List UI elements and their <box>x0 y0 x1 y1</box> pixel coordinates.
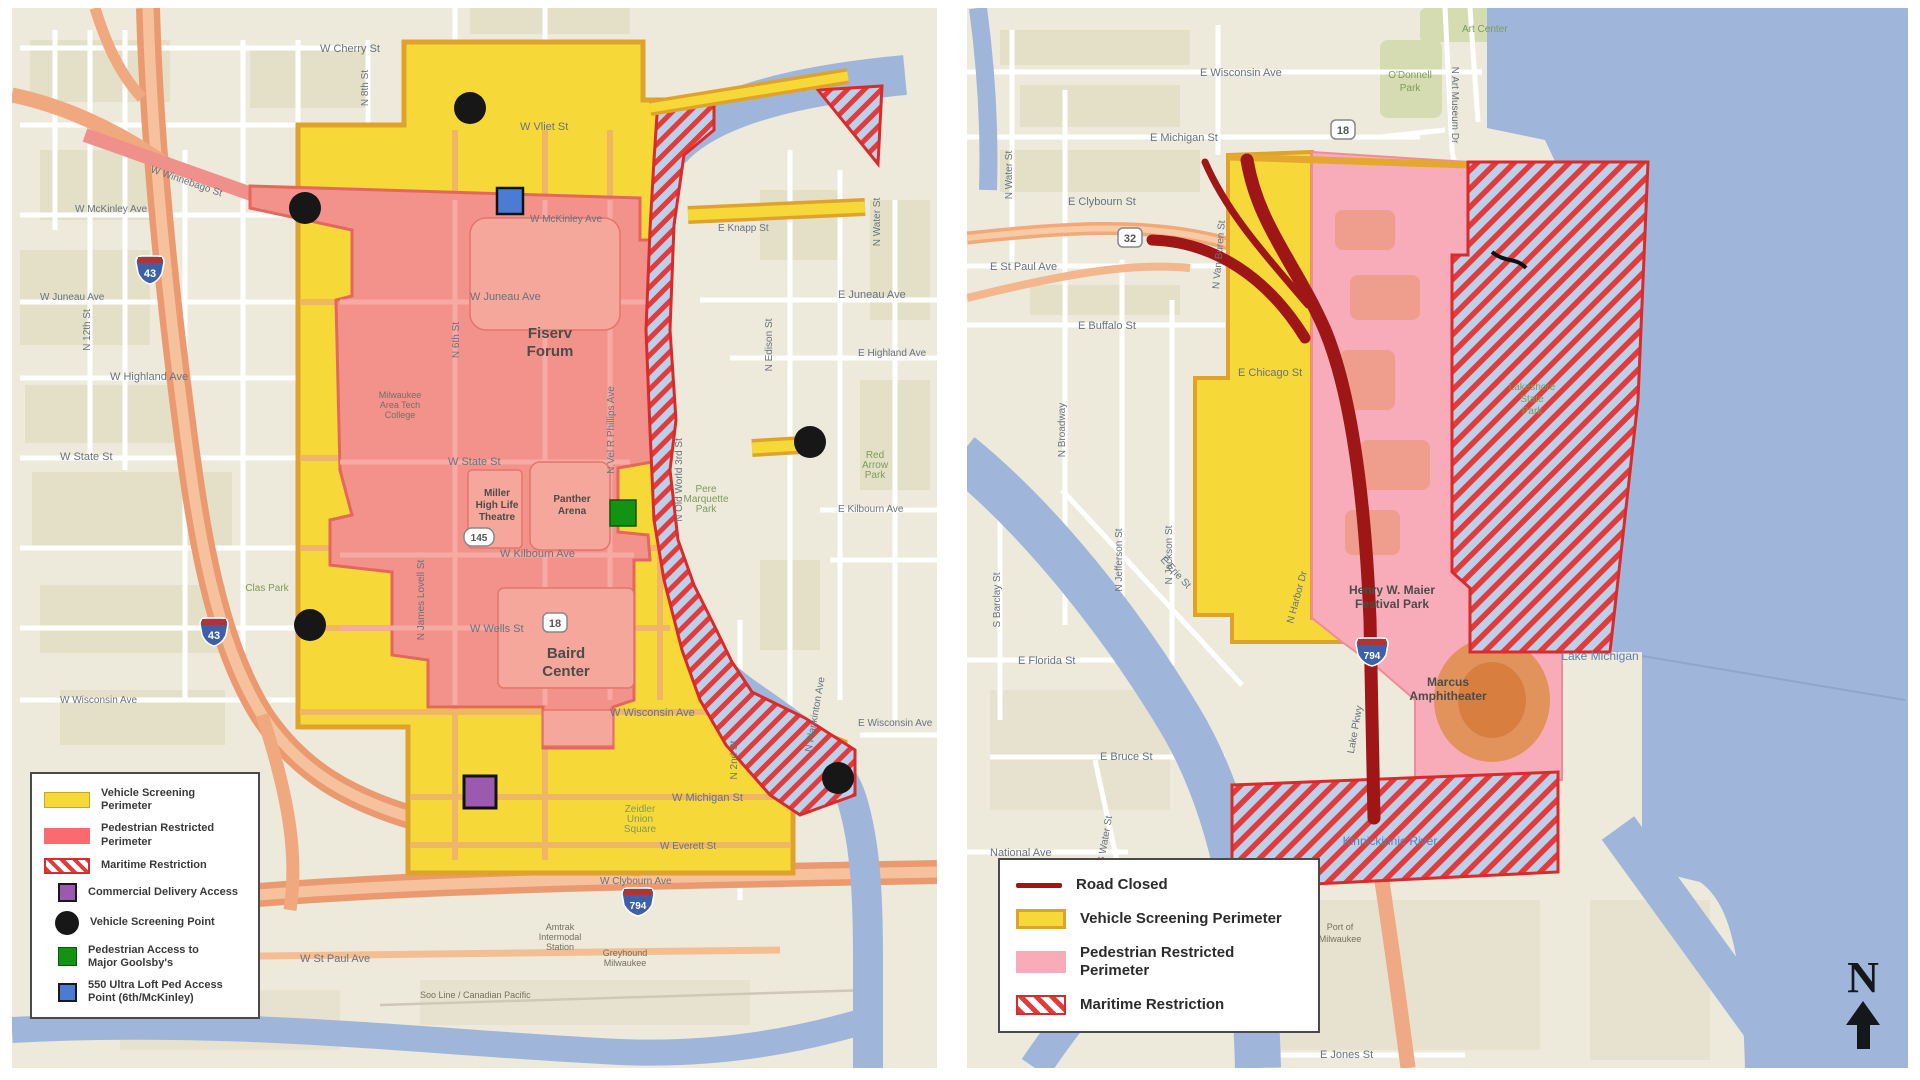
svg-text:Park: Park <box>865 470 887 481</box>
shield-label: 43 <box>144 268 156 280</box>
poi-label-greyhound: Greyhound <box>603 948 648 958</box>
street-label: E Wisconsin Ave <box>858 718 933 729</box>
legend-item-label: Vehicle Screening Point <box>90 916 215 929</box>
yellow-swatch-icon <box>44 792 90 808</box>
svg-text:Station: Station <box>546 942 574 952</box>
street-label: W State St <box>448 456 501 468</box>
vehicle-screening-point-marker[interactable] <box>294 609 326 641</box>
street-label: E Bruce St <box>1100 751 1153 763</box>
street-label: N Water St <box>1004 151 1015 200</box>
street-label: N 12th St <box>82 309 93 351</box>
street-label: N Old World 3rd St <box>674 438 685 522</box>
legend-item-label: Pedestrian Restricted Perimeter <box>1080 944 1302 980</box>
svg-text:Amphitheater: Amphitheater <box>1409 689 1487 703</box>
street-label: W Wisconsin Ave <box>60 695 137 706</box>
park-label-lakeshore: Lakeshore <box>1509 382 1556 393</box>
street-label: E Knapp St <box>718 223 769 234</box>
legend-item-label: Vehicle Screening Perimeter <box>101 787 248 813</box>
svg-text:Intermodal: Intermodal <box>539 932 582 942</box>
venue-label-baird: Baird <box>547 645 585 662</box>
legend-item-maritime-restriction: Maritime Restriction <box>1016 995 1302 1015</box>
venue-label-panther: Panther <box>553 494 590 505</box>
green-square-icon <box>58 947 77 966</box>
legend-item-vehicle-screening-perimeter: Vehicle Screening Perimeter <box>44 787 248 813</box>
street-label: N 2nd St <box>729 740 740 779</box>
vehicle-screening-point-marker[interactable] <box>289 192 321 224</box>
svg-text:Theatre: Theatre <box>479 512 516 523</box>
street-label: W Kilbourn Ave <box>500 548 575 560</box>
svg-text:Square: Square <box>624 824 657 835</box>
park-label-artcenter: Art Center <box>1462 24 1508 35</box>
north-compass: N <box>1830 958 1896 1049</box>
street-label: W Cherry St <box>320 43 380 55</box>
shield-label: 794 <box>630 901 647 912</box>
legend-item-550-ultra-loft: 550 Ultra Loft Ped Access Point (6th/McK… <box>44 979 248 1005</box>
street-label: N Vel R Phillips Ave <box>606 386 617 474</box>
security-map-page: { "left_map": { "legend": { "items": [ {… <box>0 0 1920 1080</box>
poi-label-amtrak: Amtrak <box>546 922 575 932</box>
street-label: N Water St <box>872 198 883 247</box>
pink-swatch-icon <box>1016 951 1066 973</box>
street-label: N 6th St <box>451 322 462 358</box>
black-circle-icon <box>55 911 79 935</box>
legend-item-commercial-delivery-access: Commercial Delivery Access <box>44 883 248 902</box>
legend-item-pedestrian-access: Pedestrian Access to Major Goolsby's <box>44 944 248 970</box>
water-label-lake-michigan: Lake Michigan <box>1561 649 1638 663</box>
street-label: E Chicago St <box>1238 367 1302 379</box>
street-label: W St Paul Ave <box>300 953 370 965</box>
street-label: W McKinley Ave <box>75 204 147 215</box>
svg-text:Milwaukee: Milwaukee <box>604 958 647 968</box>
legend-item-label: Maritime Restriction <box>101 859 207 872</box>
vehicle-screening-point-marker[interactable] <box>794 426 826 458</box>
highway-shield-145: 145 <box>464 528 494 546</box>
svg-text:Park: Park <box>1400 83 1422 94</box>
lakefront-map-legend: Road Closed Vehicle Screening Perimeter … <box>998 858 1320 1033</box>
legend-item-label: Commercial Delivery Access <box>88 886 238 899</box>
legend-item-pedestrian-restricted-perimeter: Pedestrian Restricted Perimeter <box>1016 944 1302 980</box>
street-label: W Wells St <box>470 623 524 635</box>
street-label: N Broadway <box>1057 403 1068 457</box>
north-arrow-icon <box>1846 1001 1880 1025</box>
street-label: N Jefferson St <box>1114 528 1125 591</box>
legend-item-label: Pedestrian Access to Major Goolsby's <box>88 944 218 970</box>
street-label: W Juneau Ave <box>470 291 541 303</box>
legend-item-label: Road Closed <box>1076 876 1168 894</box>
commercial-delivery-access-marker[interactable] <box>464 776 496 808</box>
svg-text:Center: Center <box>542 663 590 680</box>
yellow-swatch-icon <box>1016 909 1066 929</box>
shield-label: 145 <box>471 533 488 544</box>
street-label: S Barclay St <box>992 572 1003 627</box>
street-label: E St Paul Ave <box>990 261 1057 273</box>
street-label: E Michigan St <box>1150 132 1218 144</box>
svg-text:Festival Park: Festival Park <box>1355 597 1429 611</box>
highway-shield-32: 32 <box>1118 228 1142 247</box>
street-label: E Buffalo St <box>1078 320 1136 332</box>
street-label: W Wisconsin Ave <box>610 707 695 719</box>
street-label: E Florida St <box>1018 655 1075 667</box>
pedestrian-access-marker[interactable] <box>610 500 636 526</box>
legend-item-label: Maritime Restriction <box>1080 996 1224 1014</box>
legend-item-maritime-restriction: Maritime Restriction <box>44 858 248 874</box>
legend-item-label: Vehicle Screening Perimeter <box>1080 910 1282 928</box>
downtown-map-legend: Vehicle Screening Perimeter Pedestrian R… <box>30 772 260 1019</box>
shield-label: 43 <box>208 630 220 642</box>
street-label: E Juneau Ave <box>838 289 906 301</box>
street-label: W Vliet St <box>520 121 568 133</box>
shield-label: 18 <box>1337 125 1349 137</box>
svg-text:Park: Park <box>1522 406 1544 417</box>
highway-shield-us18: 18 <box>1331 120 1355 139</box>
hatch-swatch-icon <box>1016 995 1066 1015</box>
legend-item-road-closed: Road Closed <box>1016 876 1302 894</box>
legend-item-pedestrian-restricted-perimeter: Pedestrian Restricted Perimeter <box>44 822 248 848</box>
north-arrow-stem <box>1857 1025 1870 1049</box>
legend-item-vehicle-screening-perimeter: Vehicle Screening Perimeter <box>1016 909 1302 929</box>
street-label: N Art Museum Dr <box>1449 67 1460 144</box>
svg-text:Area Tech: Area Tech <box>380 400 420 410</box>
street-label: E Kilbourn Ave <box>838 504 904 515</box>
svg-text:Forum: Forum <box>527 343 574 360</box>
park-label-clas: Clas Park <box>245 583 289 594</box>
north-label: N <box>1830 958 1896 998</box>
legend-item-vehicle-screening-point: Vehicle Screening Point <box>44 911 248 935</box>
poi-label-railline: Soo Line / Canadian Pacific <box>420 990 531 1000</box>
street-label: W Clybourn Ave <box>600 876 672 887</box>
street-label: W McKinley Ave <box>530 214 602 225</box>
svg-text:Arena: Arena <box>558 506 587 517</box>
svg-text:State: State <box>1520 394 1544 405</box>
venue-label-miller: Miller <box>484 488 510 499</box>
red-swatch-icon <box>44 828 90 844</box>
road-closed-line-icon <box>1016 883 1062 888</box>
shield-label: 794 <box>1364 651 1381 662</box>
park-label-odonnell: O'Donnell <box>1388 70 1432 81</box>
poi-label-port: Port of <box>1327 922 1354 932</box>
street-label: E Highland Ave <box>858 348 927 359</box>
street-label: N Edison St <box>764 318 775 371</box>
svg-text:Park: Park <box>696 504 718 515</box>
street-label: W State St <box>60 451 113 463</box>
venue-label-festival-park: Henry W. Maier <box>1349 583 1435 597</box>
venue-label-amphitheater: Marcus <box>1427 675 1469 689</box>
svg-text:High Life: High Life <box>476 500 519 511</box>
street-label: E Clybourn St <box>1068 196 1136 208</box>
poi-label-matc: Milwaukee <box>379 390 422 400</box>
street-label: E Jones St <box>1320 1049 1373 1061</box>
blue-square-icon <box>58 983 77 1002</box>
street-label: W Michigan St <box>672 792 743 804</box>
legend-item-label: Pedestrian Restricted Perimeter <box>101 822 248 848</box>
svg-text:College: College <box>385 410 416 420</box>
water-label-kk-river: Kinnickinnic River <box>1343 834 1438 848</box>
shield-label: 18 <box>549 618 561 630</box>
street-label: N 8th St <box>360 70 371 106</box>
svg-text:Milwaukee: Milwaukee <box>1319 934 1362 944</box>
hatch-swatch-icon <box>44 858 90 874</box>
street-label: W Highland Ave <box>110 371 188 383</box>
venue-label-fiserv: Fiserv <box>528 325 573 342</box>
street-label: W Everett St <box>660 841 716 852</box>
street-label: N James Lovell St <box>416 559 427 640</box>
street-label: E Wisconsin Ave <box>1200 67 1282 79</box>
vehicle-screening-point-marker[interactable] <box>454 92 486 124</box>
street-label: N Jackson St <box>1164 525 1175 584</box>
shield-label: 32 <box>1124 233 1136 245</box>
vehicle-screening-point-marker[interactable] <box>822 762 854 794</box>
ped-access-point-marker[interactable] <box>497 188 523 214</box>
street-label: W Juneau Ave <box>40 292 105 303</box>
legend-item-label: 550 Ultra Loft Ped Access Point (6th/McK… <box>88 979 228 1005</box>
highway-shield-us18: 18 <box>543 613 567 632</box>
purple-square-icon <box>58 883 77 902</box>
